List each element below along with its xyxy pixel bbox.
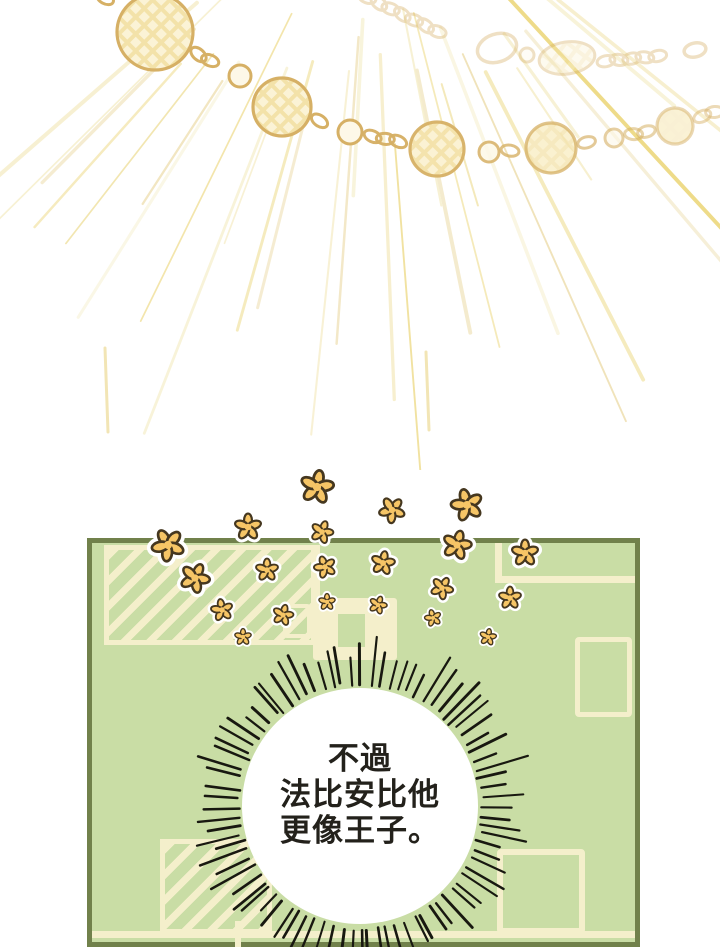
speech-line-2: 法比安比他 bbox=[240, 777, 480, 813]
light-rays bbox=[0, 0, 720, 470]
wall-line-vertical bbox=[495, 543, 502, 579]
wall-line-horizontal bbox=[495, 576, 635, 583]
speech-line-1: 不過 bbox=[240, 741, 480, 777]
comic-page: 不過 法比安比他 更像王子。 bbox=[0, 0, 720, 947]
speech-bubble-text: 不過 法比安比他 更像王子。 bbox=[240, 741, 480, 849]
necklace-illustration bbox=[0, 0, 720, 470]
window-outline-right bbox=[575, 637, 632, 717]
speech-line-3: 更像王子。 bbox=[240, 813, 480, 849]
